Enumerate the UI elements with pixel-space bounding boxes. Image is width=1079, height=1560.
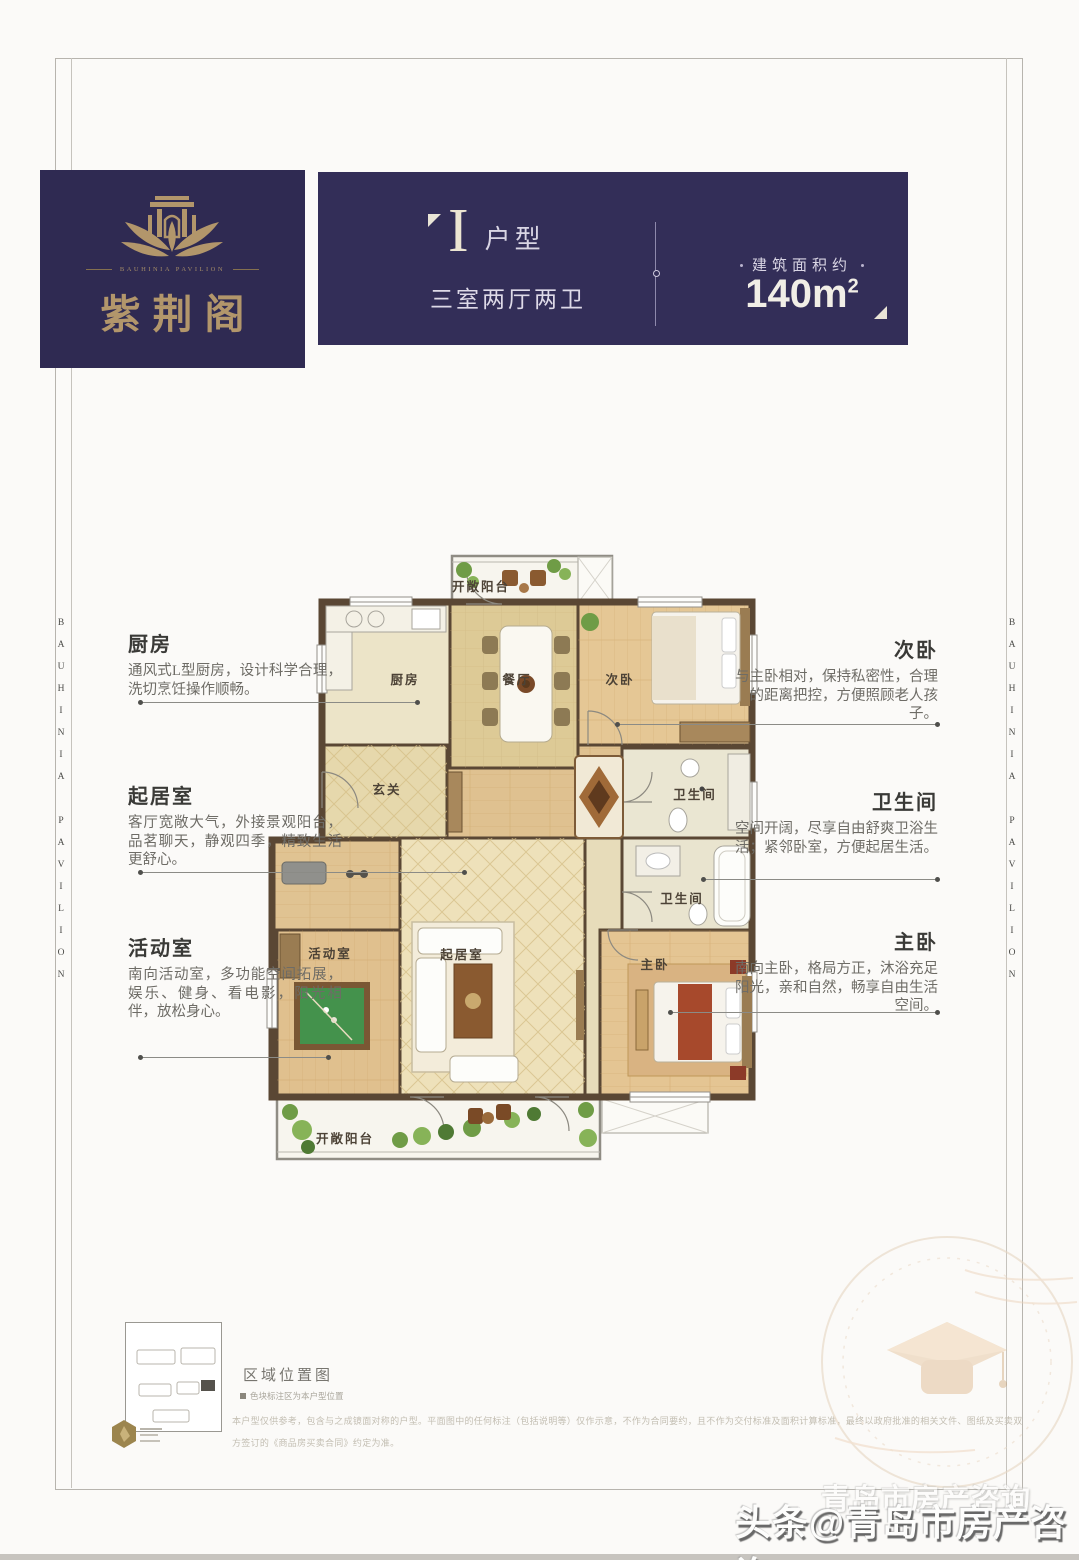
leader-line-bath bbox=[703, 879, 938, 880]
callout-bath-body: 空间开阔，尽享自由舒爽卫浴生活；紧邻卧室，方便起居生活。 bbox=[724, 820, 938, 857]
balcony-bottom bbox=[277, 1097, 600, 1159]
brand-subtitle-text: BAUHINIA PAVILION bbox=[120, 266, 225, 273]
callout-activity-body: 南向活动室，多功能空间拓展，娱乐、健身、看电影，阳光相伴，放松身心。 bbox=[128, 966, 342, 1022]
leader-line-living bbox=[140, 872, 465, 873]
room-label-dining: 餐厅 bbox=[501, 672, 531, 687]
callout-bedroom2-body: 与主卧相对，保持私密性，合理的距离把控，方便照顾老人孩子。 bbox=[724, 668, 938, 724]
brand-logo-block: BAUHINIA PAVILION 紫荆阁 bbox=[40, 170, 305, 368]
unit-type-row: I 户型 bbox=[448, 200, 545, 262]
room-label-bath-upper: 卫生间 bbox=[673, 787, 717, 802]
area-sup: 2 bbox=[848, 276, 859, 298]
callout-bedroom2: 次卧 与主卧相对，保持私密性，合理的距离把控，方便照顾老人孩子。 bbox=[724, 634, 938, 724]
leader-line-bedroom2 bbox=[617, 724, 938, 725]
callout-bath: 卫生间 空间开阔，尽享自由舒爽卫浴生活；紧邻卧室，方便起居生活。 bbox=[724, 786, 938, 857]
unit-layout-desc: 三室两厅两卫 bbox=[418, 280, 598, 314]
stamp-watermark bbox=[815, 1222, 1079, 1502]
callout-kitchen: 厨房 通风式L型厨房，设计科学合理，洗切烹饪操作顺畅。 bbox=[128, 628, 342, 699]
room-label-bath-lower: 卫生间 bbox=[660, 891, 704, 906]
callout-bedroom2-title: 次卧 bbox=[724, 634, 938, 663]
room-label-bedroom2: 次卧 bbox=[605, 672, 634, 687]
triangle-decor-top-left bbox=[428, 214, 441, 227]
unit-type-letter: I bbox=[448, 200, 469, 262]
callout-master-title: 主卧 bbox=[724, 926, 938, 955]
triangle-decor-bottom-right bbox=[874, 306, 887, 319]
map-highlight-block bbox=[201, 1380, 215, 1391]
side-text-left: BAUHINIA PAVILION bbox=[56, 618, 66, 1028]
foyer-cabinet bbox=[448, 772, 462, 832]
watermark-main: 头条@青岛市房产咨询 bbox=[735, 1494, 1079, 1560]
map-note-text: 色块标注区为本户型位置 bbox=[250, 1391, 344, 1401]
corridor-rug bbox=[575, 756, 623, 838]
callout-living-title: 起居室 bbox=[128, 780, 342, 809]
unit-type-label: 户型 bbox=[485, 219, 545, 256]
area-number: 140m bbox=[745, 272, 847, 316]
callout-activity: 活动室 南向活动室，多功能空间拓展，娱乐、健身、看电影，阳光相伴，放松身心。 bbox=[128, 932, 342, 1022]
callout-kitchen-title: 厨房 bbox=[128, 628, 342, 657]
header-band: I 户型 三室两厅两卫 建筑面积约 140m2 bbox=[318, 172, 908, 345]
graduation-cap-icon bbox=[887, 1322, 1007, 1394]
side-text-right: BAUHINIA PAVILION bbox=[1007, 618, 1017, 1028]
decor-dash bbox=[233, 269, 259, 270]
room-label-balcony-bottom: 开敞阳台 bbox=[316, 1131, 374, 1146]
poster-page: BAUHINIA PAVILION BAUHINIA PAVILION BAUH… bbox=[0, 0, 1079, 1560]
callout-master: 主卧 南向主卧，格局方正，沐浴充足阳光，亲和自然，畅享自由生活空间。 bbox=[724, 926, 938, 1016]
dot-decor bbox=[861, 264, 864, 267]
leader-line-kitchen bbox=[140, 702, 418, 703]
divider-dot bbox=[653, 270, 660, 277]
room-label-master: 主卧 bbox=[640, 957, 669, 972]
dot-decor bbox=[740, 264, 743, 267]
callout-living-body: 客厅宽敞大气，外接景观阳台，品茗聊天，静观四季，精致生活更舒心。 bbox=[128, 814, 342, 870]
room-label-foyer: 玄关 bbox=[372, 782, 401, 797]
map-title: 区域位置图 bbox=[243, 1364, 333, 1385]
legend-square bbox=[240, 1393, 246, 1399]
disclaimer-line2: 方签订的《商品房买卖合同》约定为准。 bbox=[232, 1436, 399, 1449]
room-label-balcony-top: 开敞阳台 bbox=[452, 579, 510, 594]
location-map bbox=[125, 1322, 222, 1432]
room-label-living: 起居室 bbox=[439, 947, 484, 962]
map-dev-logo-icon bbox=[110, 1418, 170, 1454]
brand-name: 紫荆阁 bbox=[40, 282, 305, 340]
leader-line-master bbox=[670, 1012, 938, 1013]
brand-emblem-subtitle: BAUHINIA PAVILION bbox=[40, 266, 305, 273]
band-divider bbox=[655, 222, 656, 326]
decor-dash bbox=[86, 269, 112, 270]
callout-activity-title: 活动室 bbox=[128, 932, 342, 961]
watermark: 青岛市房产咨询 头条@青岛市房产咨询 bbox=[735, 1490, 1079, 1556]
callout-living: 起居室 客厅宽敞大气，外接景观阳台，品茗聊天，静观四季，精致生活更舒心。 bbox=[128, 780, 342, 870]
area-value: 140m2 bbox=[714, 272, 890, 317]
callout-kitchen-body: 通风式L型厨房，设计科学合理，洗切烹饪操作顺畅。 bbox=[128, 662, 342, 699]
callout-master-body: 南向主卧，格局方正，沐浴充足阳光，亲和自然，畅享自由生活空间。 bbox=[724, 960, 938, 1016]
map-note: 色块标注区为本户型位置 bbox=[240, 1390, 344, 1402]
leader-line-activity bbox=[140, 1057, 329, 1058]
room-label-kitchen: 厨房 bbox=[390, 672, 419, 687]
callout-bath-title: 卫生间 bbox=[724, 786, 938, 815]
